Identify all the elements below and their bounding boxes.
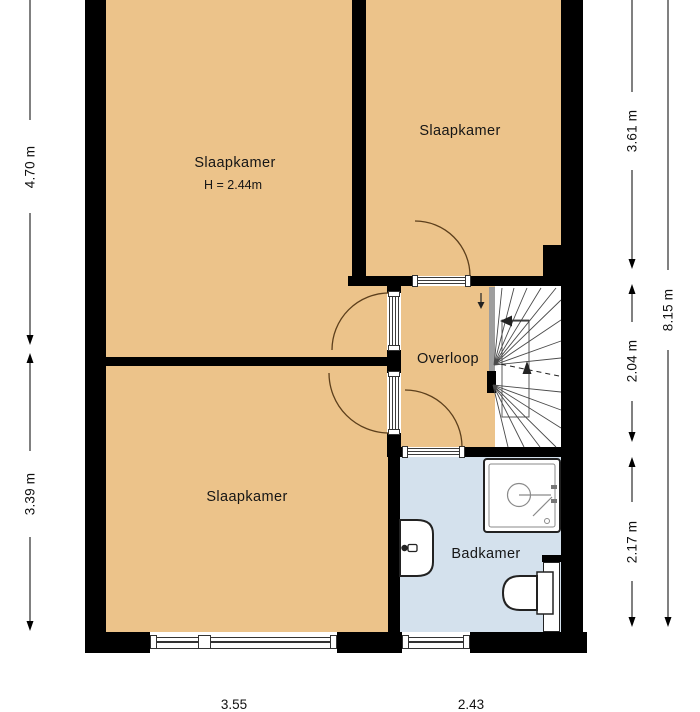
dim-label-right-bottom: 2.17 m	[625, 521, 640, 563]
room-label-bedroom-top-left: Slaapkamer	[194, 155, 275, 171]
room-ceiling-height-label: H = 2.44m	[204, 178, 262, 192]
door-arc-bedroom-top-left	[332, 293, 389, 350]
dim-label-bottom-left: 3.55	[221, 697, 247, 712]
dim-label-bottom-right: 2.43	[458, 697, 484, 712]
dim-label-left-top: 4.70 m	[23, 146, 38, 188]
dim-label-right-total: 8.15 m	[661, 289, 676, 331]
toilet-icon	[503, 572, 553, 614]
plan-detail-layer	[0, 0, 700, 700]
room-label-bedroom-bottom-left: Slaapkamer	[206, 489, 287, 505]
door-arc-bedroom-top-right	[415, 221, 470, 276]
dim-label-right-middle: 2.04 m	[625, 340, 640, 382]
stairs-direction-arrow-icon	[478, 293, 485, 309]
room-label-bathroom: Badkamer	[451, 546, 520, 562]
dim-label-right-top: 3.61 m	[625, 110, 640, 152]
floor-plan-canvas: { "plan": { "type": "floor-plan-upper-st…	[0, 0, 700, 700]
stair-walk-line	[500, 316, 559, 377]
dimension-lines	[27, 0, 672, 631]
door-arc-bedroom-bottom-left	[329, 373, 389, 433]
room-label-landing: Overloop	[417, 351, 479, 367]
door-arc-bathroom	[405, 390, 462, 447]
room-label-bedroom-top-right: Slaapkamer	[419, 123, 500, 139]
sink-icon	[400, 520, 433, 576]
door-swing-arcs	[329, 221, 470, 447]
shower-icon	[484, 459, 560, 532]
dim-label-left-bottom: 3.39 m	[23, 473, 38, 515]
